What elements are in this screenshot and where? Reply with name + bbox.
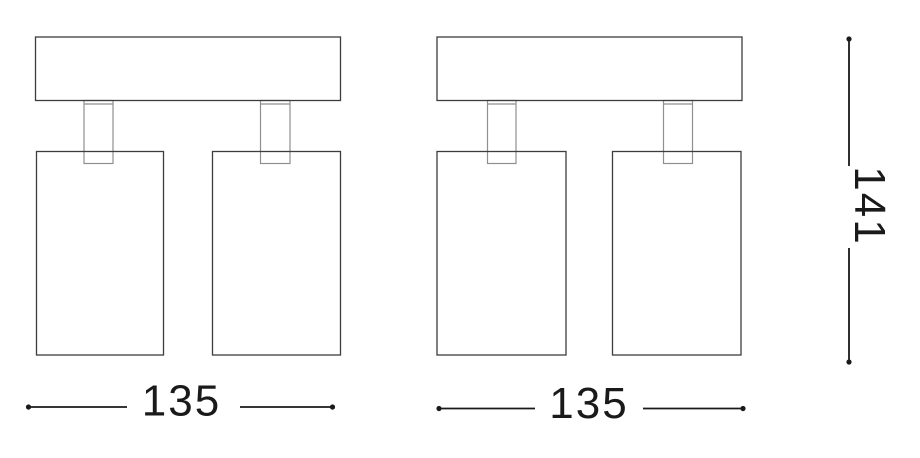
- height-dimension: 141: [845, 36, 894, 364]
- fixture-view-right: [437, 37, 742, 355]
- dimension-endpoint-dot: [846, 359, 851, 364]
- canopy-bar: [437, 37, 742, 101]
- height-dimension-label: 141: [845, 166, 894, 245]
- stem-left-icon: [488, 101, 517, 164]
- spot-body-left: [437, 152, 566, 356]
- spot-body-right: [613, 152, 742, 356]
- stem-left-icon: [84, 101, 113, 164]
- width-dimension-label-right: 135: [549, 379, 628, 428]
- dimension-endpoint-dot: [26, 404, 31, 409]
- stems-right-view: [488, 101, 693, 164]
- dimension-annotations: 135 135 141: [26, 36, 894, 428]
- dimension-endpoint-dot: [846, 36, 851, 41]
- dimension-endpoint-dot: [330, 404, 335, 409]
- dimension-endpoint-dot: [436, 406, 441, 411]
- stems-left-view: [84, 101, 290, 164]
- dimension-drawing-canvas: 135 135 141: [0, 0, 920, 458]
- width-dimension-right: 135: [436, 379, 745, 428]
- width-dimension-left: 135: [26, 377, 335, 426]
- spotlight-dimension-diagram: 135 135 141: [0, 0, 920, 458]
- stem-right-icon: [261, 101, 291, 164]
- spot-body-left: [37, 152, 164, 356]
- dimension-endpoint-dot: [740, 406, 745, 411]
- canopy-bar: [36, 37, 341, 101]
- fixture-view-left: [36, 37, 341, 355]
- fixture-outlines: [36, 37, 743, 355]
- spot-body-right: [213, 152, 341, 356]
- width-dimension-label-left: 135: [142, 377, 221, 426]
- stem-right-icon: [664, 101, 693, 164]
